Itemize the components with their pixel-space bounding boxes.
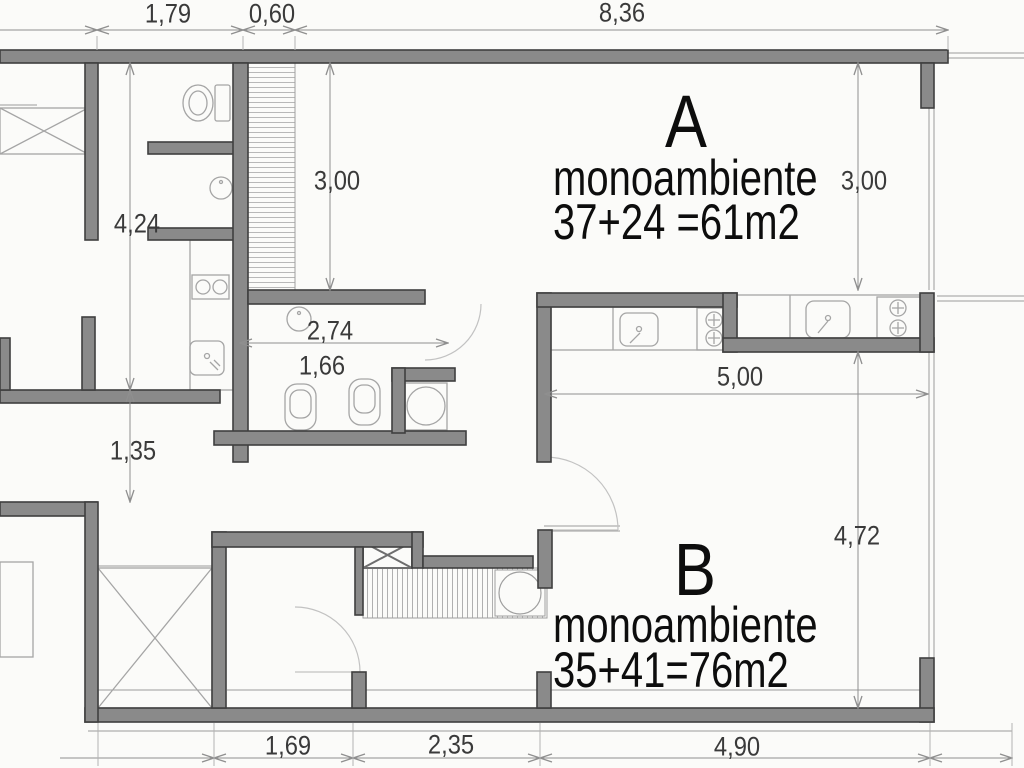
bath-b-toilet-1 xyxy=(285,384,316,430)
unit-a-area: 37+24 =61m2 xyxy=(553,197,800,247)
bath-b-toilet-2 xyxy=(349,379,380,425)
door-arc-room-b xyxy=(295,607,360,672)
wall-bath-b-top xyxy=(248,290,425,304)
unit-a-letter: A xyxy=(665,85,707,159)
dim-label-top-mid: 0,60 xyxy=(249,1,295,28)
door-arc-entry-b xyxy=(545,457,618,530)
dim-label-room-b-right: 4,72 xyxy=(834,523,880,550)
floor-plan: 1,79 0,60 8,36 4,24 3,00 3,00 2,74 1,66 … xyxy=(0,0,1024,768)
dim-label-bath-inner: 1,66 xyxy=(299,353,345,380)
stair-arrow-symbol xyxy=(0,108,88,154)
kitchen-b-counter-hatch xyxy=(363,568,547,618)
unit-b-letter: B xyxy=(674,533,716,607)
wall-kitchen-a-left xyxy=(537,293,551,462)
closet-left xyxy=(0,562,33,657)
toilet-fixture-top-wc xyxy=(183,85,230,121)
dim-label-bottom-right: 4,90 xyxy=(714,734,760,761)
dim-label-left-upper: 4,24 xyxy=(114,211,160,238)
bath-b-washer xyxy=(405,383,447,430)
kitchen-a-counter-left xyxy=(551,307,731,350)
dim-label-bath-width: 2,74 xyxy=(307,318,353,345)
wall-top-exterior xyxy=(0,50,948,63)
dim-label-top-right: 8,36 xyxy=(599,0,645,27)
kitchen-a-counter-right xyxy=(737,295,920,338)
wall-bottom-exterior xyxy=(85,708,934,722)
wall-kitchen-a-top xyxy=(537,293,737,307)
wall-kitchen-a-bottom xyxy=(723,338,934,352)
unit-b-area: 35+41=76m2 xyxy=(553,645,789,695)
floor-plan-svg xyxy=(0,0,1024,768)
wall-core-vertical xyxy=(233,63,248,462)
door-arc-bath-b xyxy=(425,304,481,360)
wall-bath-b-bottom xyxy=(214,431,466,445)
dim-label-room-a-left: 3,00 xyxy=(314,168,360,195)
dim-label-left-lower: 1,35 xyxy=(110,438,156,465)
dim-label-room-a-right: 3,00 xyxy=(841,168,887,195)
wall-kitchen-b-top xyxy=(212,532,423,547)
elevator-shaft xyxy=(98,568,212,708)
dim-label-bottom-left: 1,69 xyxy=(265,733,311,760)
stair-hatch xyxy=(248,63,295,290)
dim-label-top-left: 1,79 xyxy=(145,1,191,28)
dim-label-kitchen-width: 5,00 xyxy=(717,364,763,391)
dim-label-bottom-mid: 2,35 xyxy=(428,732,474,759)
sink-fixture-wc2 xyxy=(210,177,232,199)
kitchen-left-counter xyxy=(190,240,233,390)
